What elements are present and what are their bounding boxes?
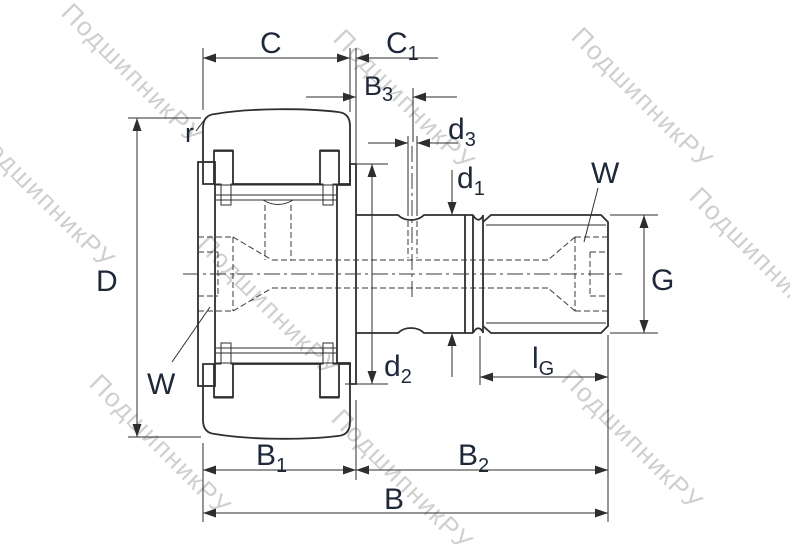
outer-ring-top-section bbox=[203, 109, 350, 184]
lube-hole-mouth bbox=[263, 200, 293, 205]
label-C: C bbox=[260, 27, 282, 60]
radial-lube-duct bbox=[265, 205, 291, 260]
label-D: D bbox=[96, 265, 118, 298]
watermark-text: ПодшипникРУ bbox=[0, 121, 121, 275]
arrow bbox=[133, 118, 142, 131]
arrow bbox=[640, 320, 649, 333]
label-d3: d3 bbox=[448, 113, 476, 151]
watermark-text: ПодшипникРУ bbox=[326, 403, 480, 547]
arrow bbox=[203, 54, 216, 63]
label-C1: C1 bbox=[386, 27, 419, 65]
seal-top-left bbox=[214, 150, 233, 205]
label-r: r bbox=[185, 118, 194, 148]
bearing-technical-drawing: ПодшипникРУ ПодшипникРУ ПодшипникРУ Подш… bbox=[0, 0, 790, 547]
label-d1: d1 bbox=[457, 162, 485, 200]
arrow bbox=[368, 371, 377, 384]
seal-bottom-left bbox=[214, 343, 233, 398]
label-B2: B2 bbox=[458, 439, 489, 477]
arrow bbox=[595, 466, 608, 475]
label-W-left: W bbox=[147, 368, 176, 401]
arrow bbox=[480, 373, 493, 382]
arrow bbox=[343, 466, 356, 475]
needle-band-top bbox=[215, 185, 337, 200]
bearing-cross-section bbox=[183, 109, 622, 439]
stud-neck-groove-top bbox=[473, 215, 483, 220]
hidden-internal-lines bbox=[198, 205, 608, 311]
label-W-right: W bbox=[591, 157, 620, 190]
watermark-text: ПодшипникРУ bbox=[556, 363, 710, 517]
watermark-text: ПодшипникРУ bbox=[684, 181, 790, 335]
arrow bbox=[595, 373, 608, 382]
watermark-text: ПодшипникРУ bbox=[566, 21, 720, 175]
label-G: G bbox=[651, 264, 674, 297]
label-lG: lG bbox=[532, 342, 554, 380]
arrow bbox=[356, 466, 369, 475]
drawing-page: ПодшипникРУ ПодшипникРУ ПодшипникРУ Подш… bbox=[0, 0, 790, 547]
stud-neck-groove-bottom bbox=[473, 328, 483, 333]
label-B: B bbox=[384, 483, 404, 516]
label-d2: d2 bbox=[384, 350, 412, 388]
arrow bbox=[640, 215, 649, 228]
arrow bbox=[448, 333, 457, 346]
arrow bbox=[448, 202, 457, 215]
leader-W-left bbox=[172, 307, 210, 362]
label-B1: B1 bbox=[256, 439, 287, 477]
arrow bbox=[395, 139, 408, 148]
arrow bbox=[368, 164, 377, 177]
arrow bbox=[595, 509, 608, 518]
